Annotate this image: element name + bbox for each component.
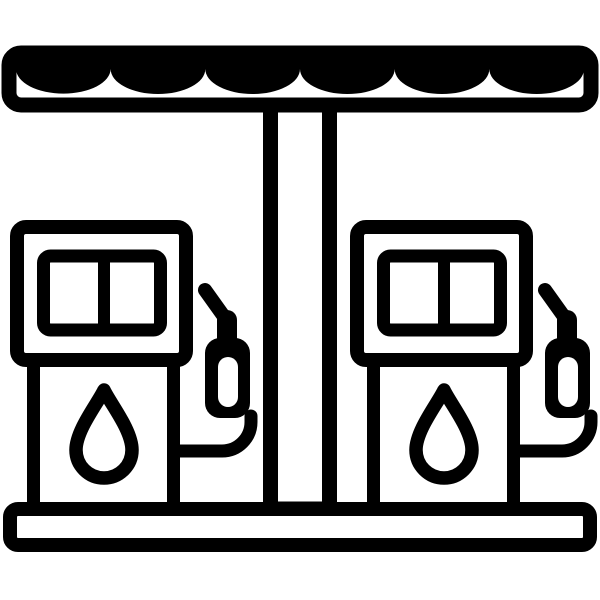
- fuel-pump-right: [357, 227, 591, 509]
- fuel-pump-left: [17, 227, 251, 509]
- support-pillar: [271, 105, 330, 509]
- base-platform: [10, 509, 590, 545]
- gas-station-icon: [0, 0, 600, 600]
- gas-station-icon-svg: [0, 0, 600, 600]
